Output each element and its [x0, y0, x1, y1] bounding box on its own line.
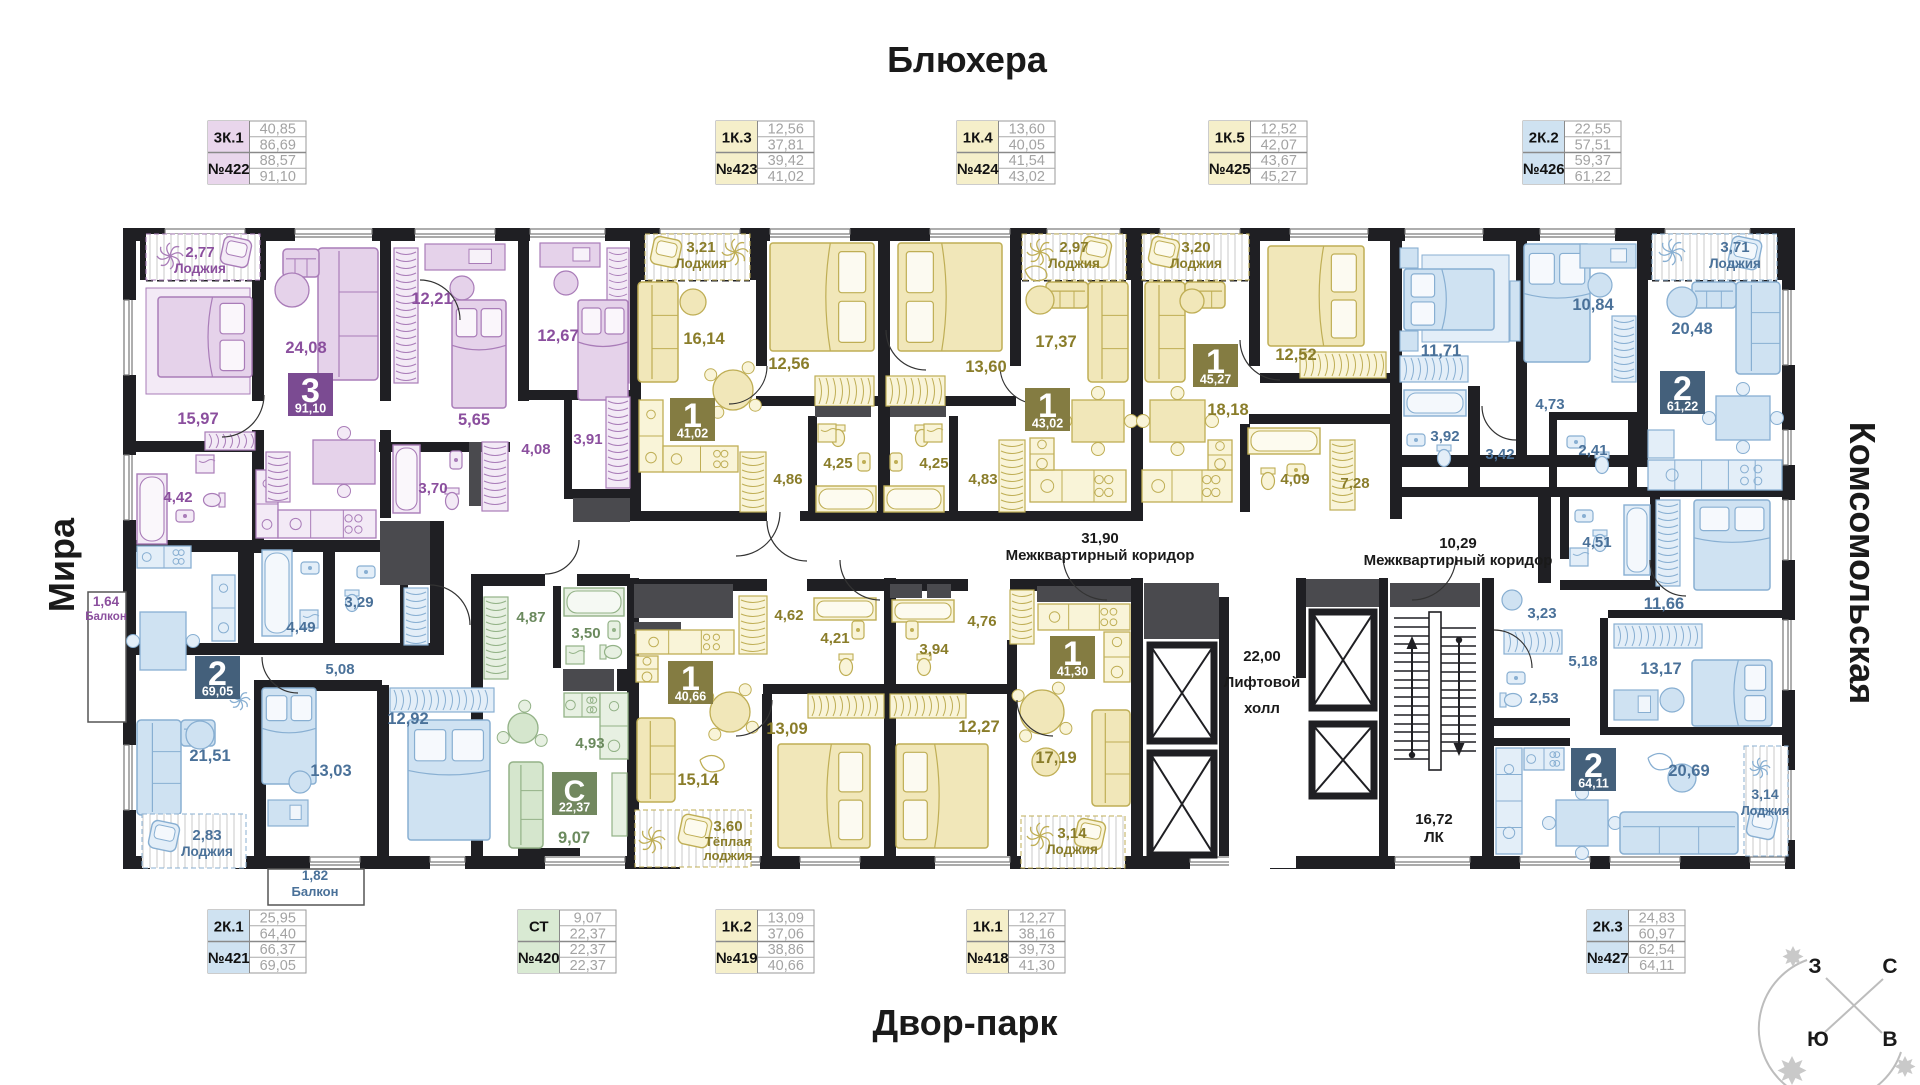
svg-text:Лоджия: Лоджия: [1741, 804, 1789, 818]
svg-text:3,20: 3,20: [1181, 239, 1210, 256]
svg-text:59,37: 59,37: [1575, 153, 1611, 169]
svg-text:18,18: 18,18: [1207, 401, 1248, 419]
svg-text:31,90: 31,90: [1081, 530, 1119, 547]
svg-text:4,51: 4,51: [1582, 534, 1611, 551]
svg-text:№422: №422: [208, 161, 250, 178]
svg-text:24,83: 24,83: [1639, 911, 1675, 927]
svg-text:4,09: 4,09: [1280, 471, 1309, 488]
svg-text:41,30: 41,30: [1019, 958, 1055, 974]
svg-text:91,10: 91,10: [295, 402, 326, 416]
svg-text:17,37: 17,37: [1035, 333, 1076, 351]
svg-text:№419: №419: [716, 950, 758, 967]
svg-text:43,02: 43,02: [1032, 417, 1063, 431]
svg-text:3,70: 3,70: [418, 480, 447, 497]
svg-text:3,42: 3,42: [1485, 446, 1514, 463]
svg-text:Двор-парк: Двор-парк: [872, 1002, 1058, 1043]
svg-text:4,76: 4,76: [967, 613, 996, 630]
svg-text:40,66: 40,66: [768, 958, 804, 974]
svg-text:4,86: 4,86: [773, 471, 802, 488]
svg-text:13,60: 13,60: [1009, 122, 1045, 138]
svg-text:З: З: [1808, 955, 1821, 978]
svg-text:66,37: 66,37: [260, 942, 296, 958]
svg-text:3,29: 3,29: [344, 594, 373, 611]
svg-text:2,41: 2,41: [1578, 442, 1607, 459]
svg-text:№418: №418: [967, 950, 1009, 967]
svg-text:7,28: 7,28: [1340, 475, 1369, 492]
svg-text:5,18: 5,18: [1568, 653, 1597, 670]
svg-text:1К.5: 1К.5: [1215, 129, 1245, 146]
svg-text:Лоджия: Лоджия: [1170, 256, 1222, 271]
svg-text:39,73: 39,73: [1019, 942, 1055, 958]
svg-text:22,37: 22,37: [559, 801, 590, 815]
svg-text:57,51: 57,51: [1575, 137, 1611, 153]
svg-text:2К.2: 2К.2: [1529, 129, 1559, 146]
svg-text:43,02: 43,02: [1009, 169, 1045, 185]
svg-text:15,97: 15,97: [177, 410, 218, 428]
svg-text:3,94: 3,94: [919, 641, 949, 658]
svg-text:4,42: 4,42: [163, 489, 192, 506]
svg-text:40,85: 40,85: [260, 122, 296, 138]
svg-text:25,95: 25,95: [260, 911, 296, 927]
svg-text:Лоджия: Лоджия: [181, 844, 233, 859]
svg-text:Тёплая: Тёплая: [705, 834, 751, 849]
svg-text:41,54: 41,54: [1009, 153, 1045, 169]
svg-text:22,00: 22,00: [1243, 648, 1281, 665]
svg-text:41,30: 41,30: [1057, 665, 1088, 679]
svg-text:91,10: 91,10: [260, 169, 296, 185]
svg-text:Межквартирный коридор: Межквартирный коридор: [1364, 552, 1553, 569]
svg-text:2К.3: 2К.3: [1593, 918, 1623, 935]
svg-text:4,62: 4,62: [774, 607, 803, 624]
svg-text:15,14: 15,14: [677, 771, 719, 789]
svg-text:41,02: 41,02: [768, 169, 804, 185]
svg-text:1К.1: 1К.1: [973, 918, 1003, 935]
svg-text:2,77: 2,77: [185, 244, 214, 261]
svg-text:№421: №421: [208, 950, 250, 967]
svg-text:42,07: 42,07: [1261, 137, 1297, 153]
svg-text:22,55: 22,55: [1575, 122, 1611, 138]
svg-text:Ю: Ю: [1807, 1028, 1829, 1051]
svg-text:лоджия: лоджия: [704, 848, 753, 863]
svg-text:1К.3: 1К.3: [722, 129, 752, 146]
svg-text:4,25: 4,25: [919, 455, 948, 472]
svg-text:3,60: 3,60: [713, 818, 742, 835]
svg-text:43,67: 43,67: [1261, 153, 1297, 169]
svg-text:3,21: 3,21: [686, 239, 715, 256]
svg-text:12,67: 12,67: [537, 327, 578, 345]
svg-text:№427: №427: [1587, 950, 1629, 967]
svg-text:Блюхера: Блюхера: [887, 39, 1048, 80]
svg-text:Лоджия: Лоджия: [675, 256, 727, 271]
svg-text:4,25: 4,25: [823, 455, 852, 472]
svg-text:4,73: 4,73: [1535, 396, 1564, 413]
svg-text:№426: №426: [1523, 161, 1565, 178]
svg-text:61,22: 61,22: [1575, 169, 1611, 185]
svg-text:С: С: [1882, 955, 1897, 978]
svg-text:9,07: 9,07: [558, 829, 590, 847]
svg-text:3К.1: 3К.1: [214, 129, 244, 146]
svg-text:1,82: 1,82: [302, 868, 328, 883]
svg-text:37,81: 37,81: [768, 137, 804, 153]
svg-text:9,07: 9,07: [574, 911, 602, 927]
svg-text:12,52: 12,52: [1275, 346, 1316, 364]
svg-text:22,37: 22,37: [570, 942, 606, 958]
svg-text:3,71: 3,71: [1720, 239, 1749, 256]
svg-text:11,71: 11,71: [1421, 342, 1461, 360]
svg-text:5,65: 5,65: [458, 411, 490, 429]
svg-text:13,09: 13,09: [766, 720, 807, 738]
svg-text:Межквартирный коридор: Межквартирный коридор: [1006, 547, 1195, 564]
svg-text:13,03: 13,03: [310, 762, 351, 780]
svg-text:37,06: 37,06: [768, 926, 804, 942]
svg-text:41,02: 41,02: [677, 427, 708, 441]
svg-text:2К.1: 2К.1: [214, 918, 244, 935]
svg-text:3,14: 3,14: [1057, 825, 1087, 842]
svg-text:12,52: 12,52: [1261, 122, 1297, 138]
svg-text:№425: №425: [1209, 161, 1251, 178]
svg-text:Лоджия: Лоджия: [1046, 842, 1098, 857]
svg-text:3,50: 3,50: [571, 625, 600, 642]
svg-text:№420: №420: [518, 950, 560, 967]
svg-text:1К.2: 1К.2: [722, 918, 752, 935]
svg-text:22,37: 22,37: [570, 926, 606, 942]
svg-text:86,69: 86,69: [260, 137, 296, 153]
svg-text:13,60: 13,60: [965, 358, 1006, 376]
svg-text:64,11: 64,11: [1639, 958, 1674, 974]
svg-text:№423: №423: [716, 161, 758, 178]
svg-text:13,17: 13,17: [1640, 660, 1681, 678]
svg-text:20,69: 20,69: [1668, 762, 1709, 780]
svg-text:45,27: 45,27: [1200, 373, 1231, 387]
svg-text:13,09: 13,09: [768, 911, 804, 927]
svg-text:4,93: 4,93: [575, 735, 604, 752]
svg-text:60,97: 60,97: [1639, 926, 1675, 942]
svg-text:40,66: 40,66: [675, 690, 706, 704]
svg-text:3,91: 3,91: [573, 431, 602, 448]
svg-text:16,72: 16,72: [1415, 811, 1453, 828]
svg-text:4,87: 4,87: [516, 609, 545, 626]
svg-text:69,05: 69,05: [260, 958, 296, 974]
svg-text:Комсомольская: Комсомольская: [1842, 422, 1883, 705]
svg-text:12,21: 12,21: [411, 290, 452, 308]
svg-text:45,27: 45,27: [1261, 169, 1297, 185]
svg-text:Балкон: Балкон: [85, 611, 127, 623]
svg-text:69,05: 69,05: [202, 685, 233, 699]
svg-text:10,29: 10,29: [1439, 535, 1477, 552]
svg-text:64,40: 64,40: [260, 926, 296, 942]
svg-text:12,56: 12,56: [768, 355, 809, 373]
svg-text:Балкон: Балкон: [292, 884, 339, 899]
svg-text:Лоджия: Лоджия: [174, 261, 226, 276]
svg-text:3,14: 3,14: [1751, 786, 1778, 802]
svg-text:11,66: 11,66: [1644, 595, 1684, 613]
svg-text:2,97: 2,97: [1059, 239, 1088, 256]
svg-text:10,84: 10,84: [1572, 296, 1614, 314]
svg-text:62,54: 62,54: [1639, 942, 1675, 958]
svg-text:Мира: Мира: [41, 517, 82, 612]
svg-text:4,21: 4,21: [820, 630, 849, 647]
svg-text:24,08: 24,08: [285, 339, 326, 357]
svg-text:22,37: 22,37: [570, 958, 606, 974]
svg-text:12,56: 12,56: [768, 122, 804, 138]
svg-text:3,23: 3,23: [1527, 605, 1556, 622]
svg-text:20,48: 20,48: [1671, 320, 1712, 338]
svg-text:2,83: 2,83: [192, 827, 221, 844]
svg-text:2,53: 2,53: [1529, 690, 1558, 707]
svg-text:3,92: 3,92: [1430, 428, 1459, 445]
svg-text:38,86: 38,86: [768, 942, 804, 958]
svg-text:Лоджия: Лоджия: [1048, 256, 1100, 271]
svg-text:12,27: 12,27: [1019, 911, 1055, 927]
svg-text:21,51: 21,51: [189, 747, 230, 765]
svg-text:4,83: 4,83: [968, 471, 997, 488]
svg-text:5,08: 5,08: [325, 661, 354, 678]
svg-text:1,64: 1,64: [93, 594, 120, 609]
svg-text:холл: холл: [1244, 700, 1280, 717]
svg-text:№424: №424: [957, 161, 999, 178]
svg-text:17,19: 17,19: [1035, 749, 1076, 767]
svg-text:Лифтовой: Лифтовой: [1224, 674, 1300, 691]
svg-text:12,27: 12,27: [958, 718, 999, 736]
svg-text:61,22: 61,22: [1667, 400, 1698, 414]
svg-text:40,05: 40,05: [1009, 137, 1045, 153]
svg-text:Лоджия: Лоджия: [1709, 256, 1761, 271]
svg-text:38,16: 38,16: [1019, 926, 1055, 942]
svg-text:39,42: 39,42: [768, 153, 804, 169]
svg-text:88,57: 88,57: [260, 153, 296, 169]
svg-text:В: В: [1882, 1028, 1897, 1051]
svg-text:1К.4: 1К.4: [963, 129, 994, 146]
svg-text:СТ: СТ: [529, 918, 549, 935]
svg-text:64,11: 64,11: [1578, 777, 1609, 791]
svg-text:ЛК: ЛК: [1424, 829, 1445, 846]
svg-text:16,14: 16,14: [683, 330, 725, 348]
svg-text:4,49: 4,49: [286, 619, 315, 636]
svg-text:4,08: 4,08: [521, 441, 550, 458]
svg-text:12,92: 12,92: [387, 710, 428, 728]
